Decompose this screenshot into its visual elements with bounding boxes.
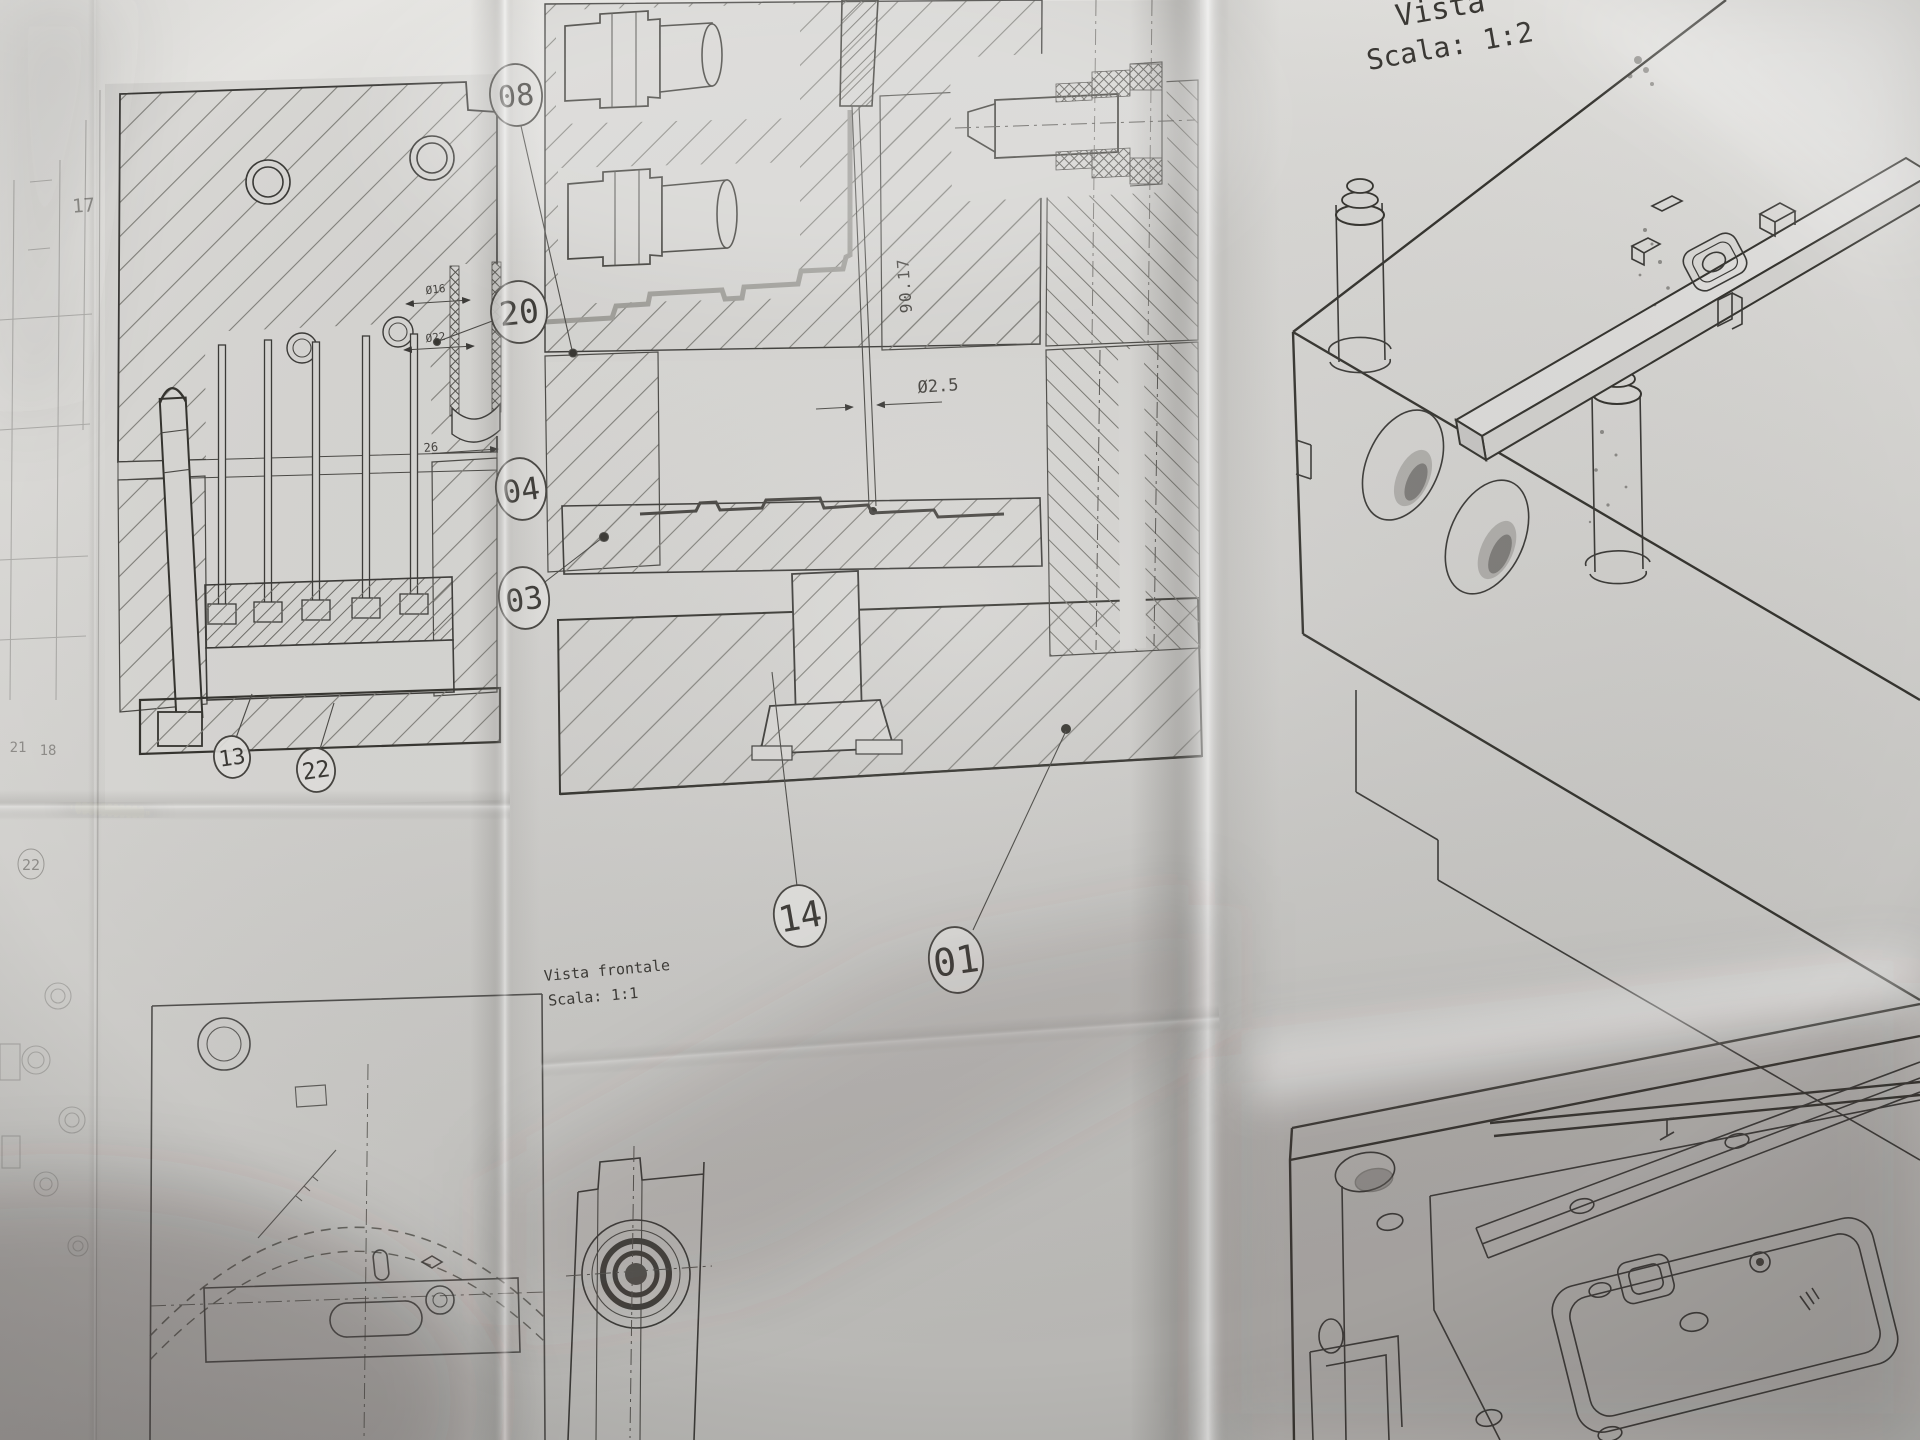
drawing-canvas: Ø16 Ø22 26	[0, 0, 1920, 1440]
paper-folds-and-shadows	[0, 0, 1920, 1440]
photo-of-technical-drawing: Ø16 Ø22 26	[0, 0, 1920, 1440]
